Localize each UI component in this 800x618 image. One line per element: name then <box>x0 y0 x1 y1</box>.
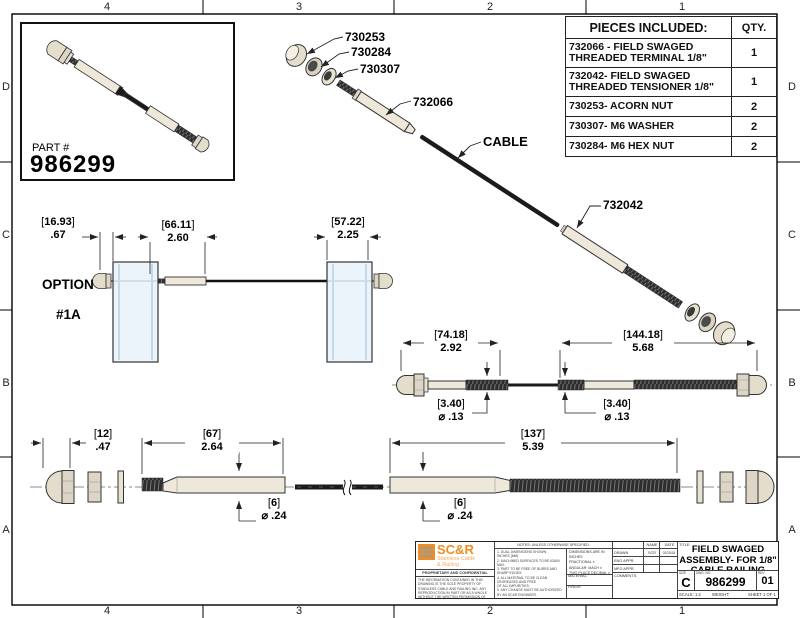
zone-label-right-c: C <box>784 229 800 242</box>
post-left <box>113 262 158 362</box>
post-right <box>327 262 372 362</box>
scale-value: SCALE: 1:2 <box>679 591 701 598</box>
company-logo-cell: SC&R Stainless Cable & Railing PROPRIETA… <box>416 542 495 598</box>
table-row: 730307- M6 WASHER 2 <box>566 117 777 137</box>
dimension-assembly-dia-left: 3.40⌀ .13 <box>431 398 471 424</box>
drawn-name: SCR <box>643 549 659 557</box>
zone-label-left-c: C <box>0 229 14 242</box>
approval-grid: NAME DATE DRAWN SCR 03/25/18 ENG APPR. M… <box>613 542 678 598</box>
callout-terminal: 732066 <box>413 95 453 109</box>
name-column-header: NAME <box>643 542 659 549</box>
parts-table-header: PIECES INCLUDED: <box>566 17 732 39</box>
company-logo-text: SC&R <box>437 544 475 556</box>
zone-label-top-4: 4 <box>99 1 115 14</box>
parts-table-header-row: PIECES INCLUDED: QTY. <box>566 17 777 39</box>
title-label: TITLE: <box>679 543 690 547</box>
drawing-title-cell: TITLE: FIELD SWAGED ASSEMBLY- FOR 1/8" C… <box>678 542 778 571</box>
parts-table: PIECES INCLUDED: QTY. 732066 - FIELD SWA… <box>565 16 777 157</box>
dimension-exploded-nut: 12.47 <box>86 428 120 454</box>
drawing-title-line1: FIELD SWAGED <box>678 545 778 556</box>
dimension-assembly-dia-right: 3.40⌀ .13 <box>597 398 637 424</box>
callout-acorn-nut: 730253 <box>345 30 385 44</box>
dimension-option-fitting: 66.112.60 <box>152 219 204 245</box>
zone-label-top-3: 3 <box>291 1 307 14</box>
dimension-option-post: 57.222.25 <box>328 216 368 242</box>
dimension-exploded-dia-right: 6⌀ .24 <box>438 497 482 523</box>
callout-cable: CABLE <box>483 134 528 149</box>
notes-header: NOTES: UNLESS OTHERWISE SPECIFIED: <box>495 542 613 549</box>
zone-label-bottom-3: 3 <box>291 605 307 618</box>
parts-table-qty-header: QTY. <box>732 17 777 39</box>
sheet-number: SHEET 1 OF 1 <box>748 591 776 598</box>
zone-label-right-d: D <box>784 81 800 94</box>
drawn-label: DRAWN <box>613 549 643 557</box>
date-column-header: DATE <box>659 542 678 549</box>
exploded-view-bottom-drawing <box>30 438 774 521</box>
zone-label-bottom-1: 1 <box>674 605 690 618</box>
callout-washer: 730307 <box>360 62 400 76</box>
part-number-value: 986299 <box>30 151 116 179</box>
zone-label-top-1: 1 <box>674 1 690 14</box>
table-row: 732042- FIELD SWAGED THREADED TENSIONER … <box>566 68 777 97</box>
engineering-drawing-sheet: { "zones": { "top": ["4","3","2","1"], "… <box>0 0 800 618</box>
rev-cell: REV 01 <box>757 571 778 591</box>
comments-label: COMMENTS: <box>613 573 678 580</box>
zone-label-right-a: A <box>784 524 800 537</box>
zone-label-left-b: B <box>0 377 14 390</box>
company-logo-icon <box>418 544 435 560</box>
notes-body: 1. DUAL DIMENSIONS SHOWN: INCHES [MM] 2.… <box>495 549 567 598</box>
table-row: 732066 - FIELD SWAGED THREADED TERMINAL … <box>566 39 777 68</box>
zone-label-bottom-4: 4 <box>99 605 115 618</box>
callout-hex-nut: 730284 <box>351 45 391 59</box>
proprietary-heading: PROPRIETARY AND CONFIDENTIAL <box>416 569 494 577</box>
finish-label: FINISH <box>567 586 613 598</box>
dwg-no-value: 986299 <box>695 575 756 589</box>
dwg-no-cell: DWG. NO. 986299 <box>695 571 757 591</box>
weight-label: WEIGHT: <box>712 591 729 598</box>
zone-label-top-2: 2 <box>482 1 498 14</box>
option-view-drawing <box>82 232 393 362</box>
option-view-title: OPTION <box>42 277 94 292</box>
size-value: C <box>678 575 694 590</box>
dimension-assembly-left: 74.182.92 <box>424 329 478 355</box>
zone-label-right-b: B <box>784 377 800 390</box>
dimension-exploded-dia-left: 6⌀ .24 <box>252 497 296 523</box>
mfg-appr-label: MFG APPR. <box>613 565 643 573</box>
rev-value: 01 <box>757 575 778 587</box>
dimension-option-gap: 16.93.67 <box>32 216 84 242</box>
table-row: 730284- M6 HEX NUT 2 <box>566 137 777 157</box>
size-cell: SIZE C <box>678 571 695 591</box>
zone-label-left-d: D <box>0 81 14 94</box>
eng-appr-label: ENG APPR. <box>613 557 643 565</box>
material-label: MATERIAL <box>567 575 613 586</box>
company-logo-sub2: & Railing <box>437 562 475 568</box>
dimension-exploded-terminal: 672.64 <box>185 428 239 454</box>
zone-label-bottom-2: 2 <box>482 605 498 618</box>
dimension-exploded-tensioner: 1375.39 <box>505 428 561 454</box>
table-row: 730253- ACORN NUT 2 <box>566 97 777 117</box>
title-block: SC&R Stainless Cable & Railing PROPRIETA… <box>415 541 779 599</box>
dimension-assembly-right: 144.185.68 <box>612 329 674 355</box>
drawn-date: 03/25/18 <box>659 549 678 557</box>
tolerance-block: DIMENSIONS ARE IN INCHES FRACTIONAL ± AN… <box>567 549 613 575</box>
zone-label-left-a: A <box>0 524 14 537</box>
callout-tensioner: 732042 <box>603 198 643 212</box>
option-view-subtitle: #1A <box>56 307 81 322</box>
scale-row: SCALE: 1:2 WEIGHT: SHEET 1 OF 1 <box>678 591 778 598</box>
proprietary-text: THE INFORMATION CONTAINED IN THIS DRAWIN… <box>416 577 494 598</box>
